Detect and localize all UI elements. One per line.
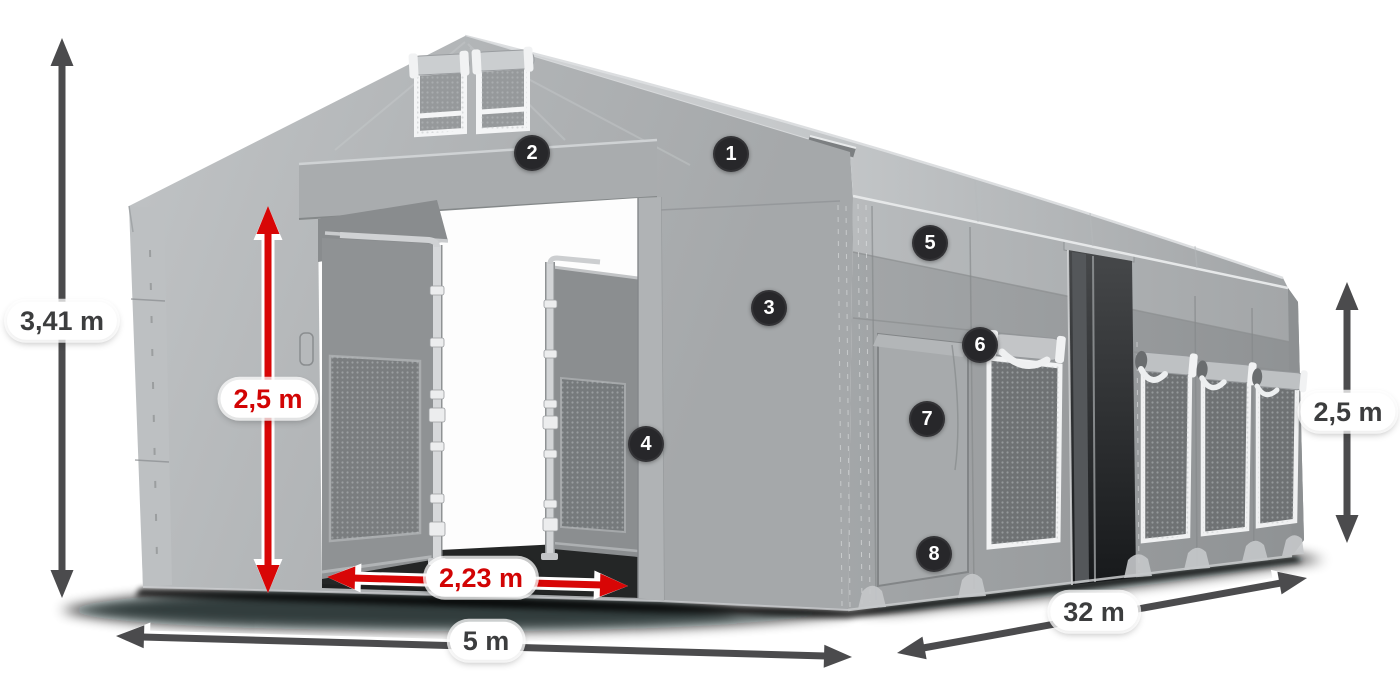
dim-total-height: 3,41 m xyxy=(7,302,117,340)
feature-marker-6[interactable]: 6 xyxy=(962,327,998,363)
tent-illustration xyxy=(0,0,1400,700)
side-windows-far xyxy=(1134,348,1308,541)
diagram-stage: 1 2 3 4 5 6 7 8 3,41 m 2,5 m 2,23 m 5 m … xyxy=(0,0,1400,700)
feature-marker-4[interactable]: 4 xyxy=(628,426,664,462)
feature-marker-3[interactable]: 3 xyxy=(751,290,787,326)
feature-marker-7[interactable]: 7 xyxy=(909,401,945,437)
sliding-door-opening xyxy=(1064,240,1136,585)
entrance-door-left xyxy=(322,238,437,579)
entrance-right-pillar xyxy=(638,197,664,601)
dim-side-height: 2,5 m xyxy=(1300,393,1395,431)
dim-width: 5 m xyxy=(450,622,523,660)
dim-length: 32 m xyxy=(1050,593,1138,631)
feature-marker-1[interactable]: 1 xyxy=(713,136,749,172)
feature-marker-2[interactable]: 2 xyxy=(514,135,550,171)
entrance-opening xyxy=(318,197,664,601)
dim-entrance-width: 2,23 m xyxy=(426,559,536,597)
dim-entrance-height: 2,5 m xyxy=(220,380,315,418)
entrance-door-right xyxy=(553,267,638,557)
feature-marker-5[interactable]: 5 xyxy=(912,225,948,261)
feature-marker-8[interactable]: 8 xyxy=(916,536,952,572)
